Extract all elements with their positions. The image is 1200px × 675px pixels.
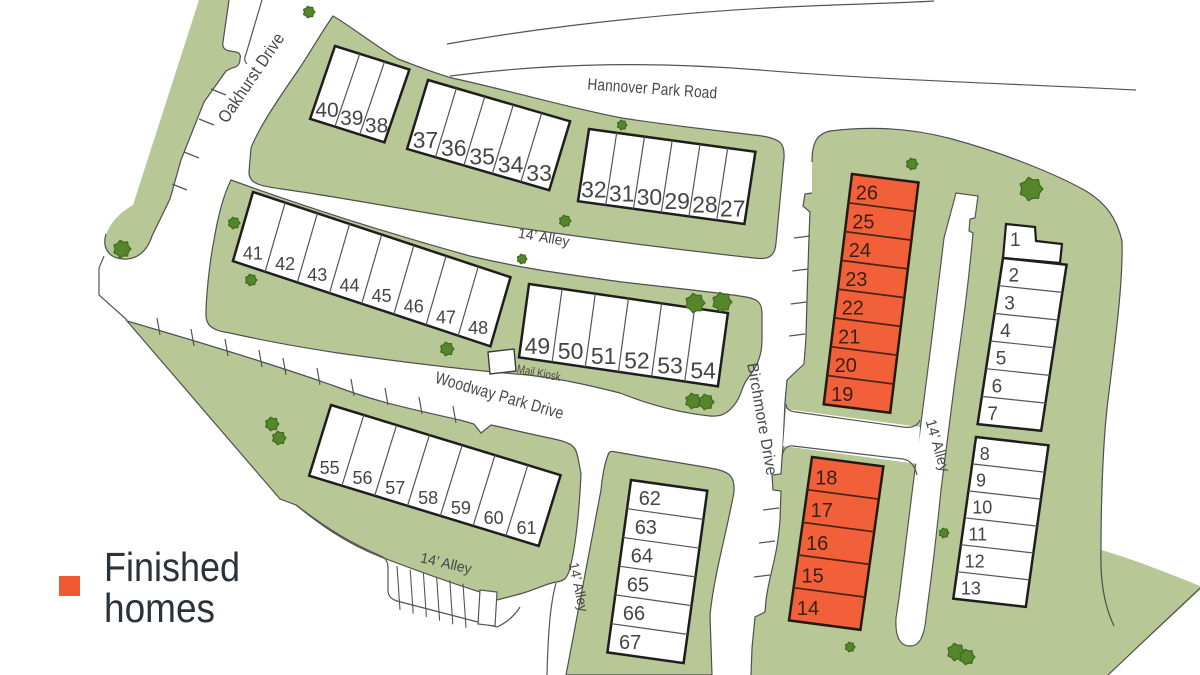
svg-text:13: 13 [961, 579, 981, 599]
svg-text:61: 61 [516, 518, 536, 538]
svg-text:14: 14 [797, 598, 819, 620]
svg-text:36: 36 [441, 135, 467, 161]
svg-text:38: 38 [365, 115, 388, 138]
svg-text:41: 41 [243, 244, 263, 264]
svg-text:54: 54 [690, 357, 716, 383]
svg-text:45: 45 [372, 286, 392, 306]
svg-text:17: 17 [811, 500, 833, 522]
svg-text:21: 21 [838, 327, 860, 349]
svg-text:33: 33 [526, 160, 552, 186]
svg-text:48: 48 [468, 318, 488, 338]
svg-text:23: 23 [845, 269, 867, 291]
svg-text:56: 56 [352, 468, 372, 488]
svg-text:3: 3 [1004, 293, 1015, 314]
svg-text:8: 8 [980, 444, 990, 464]
svg-text:1: 1 [1010, 230, 1021, 251]
svg-text:29: 29 [664, 188, 690, 214]
svg-text:31: 31 [609, 180, 635, 206]
svg-text:18: 18 [815, 468, 837, 490]
svg-text:59: 59 [451, 498, 471, 518]
svg-text:6: 6 [992, 376, 1003, 397]
svg-text:55: 55 [320, 458, 340, 478]
svg-text:53: 53 [657, 353, 683, 379]
svg-text:58: 58 [418, 488, 438, 508]
svg-text:57: 57 [385, 478, 405, 498]
svg-text:66: 66 [623, 603, 645, 625]
svg-text:19: 19 [831, 384, 853, 406]
svg-text:52: 52 [624, 348, 650, 374]
svg-text:37: 37 [413, 127, 439, 153]
svg-text:26: 26 [856, 183, 878, 205]
svg-text:28: 28 [692, 192, 718, 218]
svg-text:27: 27 [720, 196, 746, 222]
svg-text:67: 67 [619, 632, 641, 654]
svg-text:9: 9 [976, 471, 986, 491]
svg-text:32: 32 [581, 177, 607, 203]
svg-text:40: 40 [315, 99, 338, 122]
svg-text:63: 63 [635, 517, 657, 539]
svg-text:51: 51 [591, 343, 617, 369]
svg-text:homes: homes [104, 585, 215, 631]
svg-text:49: 49 [525, 333, 551, 359]
svg-text:5: 5 [996, 349, 1007, 370]
svg-text:20: 20 [835, 355, 857, 377]
svg-text:24: 24 [849, 240, 871, 262]
svg-text:Finished: Finished [104, 544, 240, 590]
svg-text:35: 35 [469, 143, 495, 169]
svg-text:62: 62 [639, 488, 661, 510]
svg-text:44: 44 [339, 275, 359, 295]
svg-text:65: 65 [627, 574, 649, 596]
svg-text:25: 25 [852, 211, 874, 233]
svg-text:7: 7 [987, 404, 998, 425]
svg-text:34: 34 [498, 152, 524, 178]
svg-text:2: 2 [1009, 266, 1020, 287]
svg-text:11: 11 [968, 525, 987, 545]
svg-text:4: 4 [1000, 321, 1011, 342]
svg-text:16: 16 [806, 533, 828, 555]
svg-text:46: 46 [404, 297, 424, 317]
svg-text:10: 10 [972, 498, 992, 518]
svg-text:12: 12 [965, 552, 985, 572]
svg-text:47: 47 [436, 307, 456, 327]
svg-text:60: 60 [484, 508, 504, 528]
svg-text:42: 42 [275, 254, 295, 274]
svg-text:39: 39 [340, 107, 363, 130]
svg-text:64: 64 [631, 546, 653, 568]
svg-text:50: 50 [558, 338, 584, 364]
svg-text:22: 22 [842, 298, 864, 320]
svg-text:30: 30 [637, 184, 663, 210]
svg-text:43: 43 [307, 265, 327, 285]
svg-text:15: 15 [802, 566, 824, 588]
